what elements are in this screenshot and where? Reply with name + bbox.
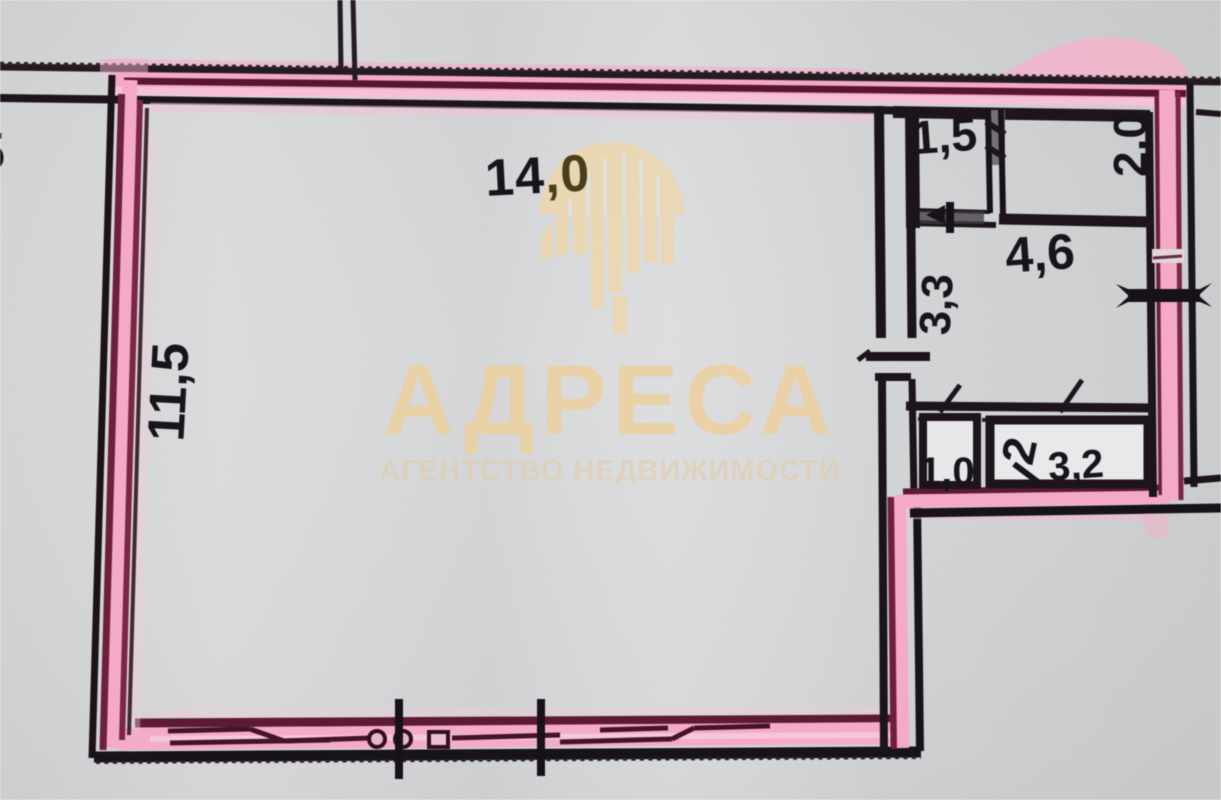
svg-text:14,0: 14,0 (484, 144, 592, 207)
svg-text:АДРЕСА: АДРЕСА (383, 344, 837, 455)
svg-text:2,0: 2,0 (1104, 113, 1156, 177)
svg-text:АГЕНТСТВО НЕДВИЖИМОСТИ: АГЕНТСТВО НЕДВИЖИМОСТИ (379, 455, 840, 487)
svg-text:3,2: 3,2 (1047, 442, 1106, 490)
svg-text:11,5: 11,5 (137, 341, 200, 442)
svg-text:4,6: 4,6 (1003, 223, 1076, 284)
svg-text:3,3: 3,3 (911, 273, 963, 337)
svg-text:5: 5 (0, 122, 5, 182)
svg-text:1,0: 1,0 (919, 450, 975, 494)
svg-text:1,5: 1,5 (910, 107, 979, 164)
